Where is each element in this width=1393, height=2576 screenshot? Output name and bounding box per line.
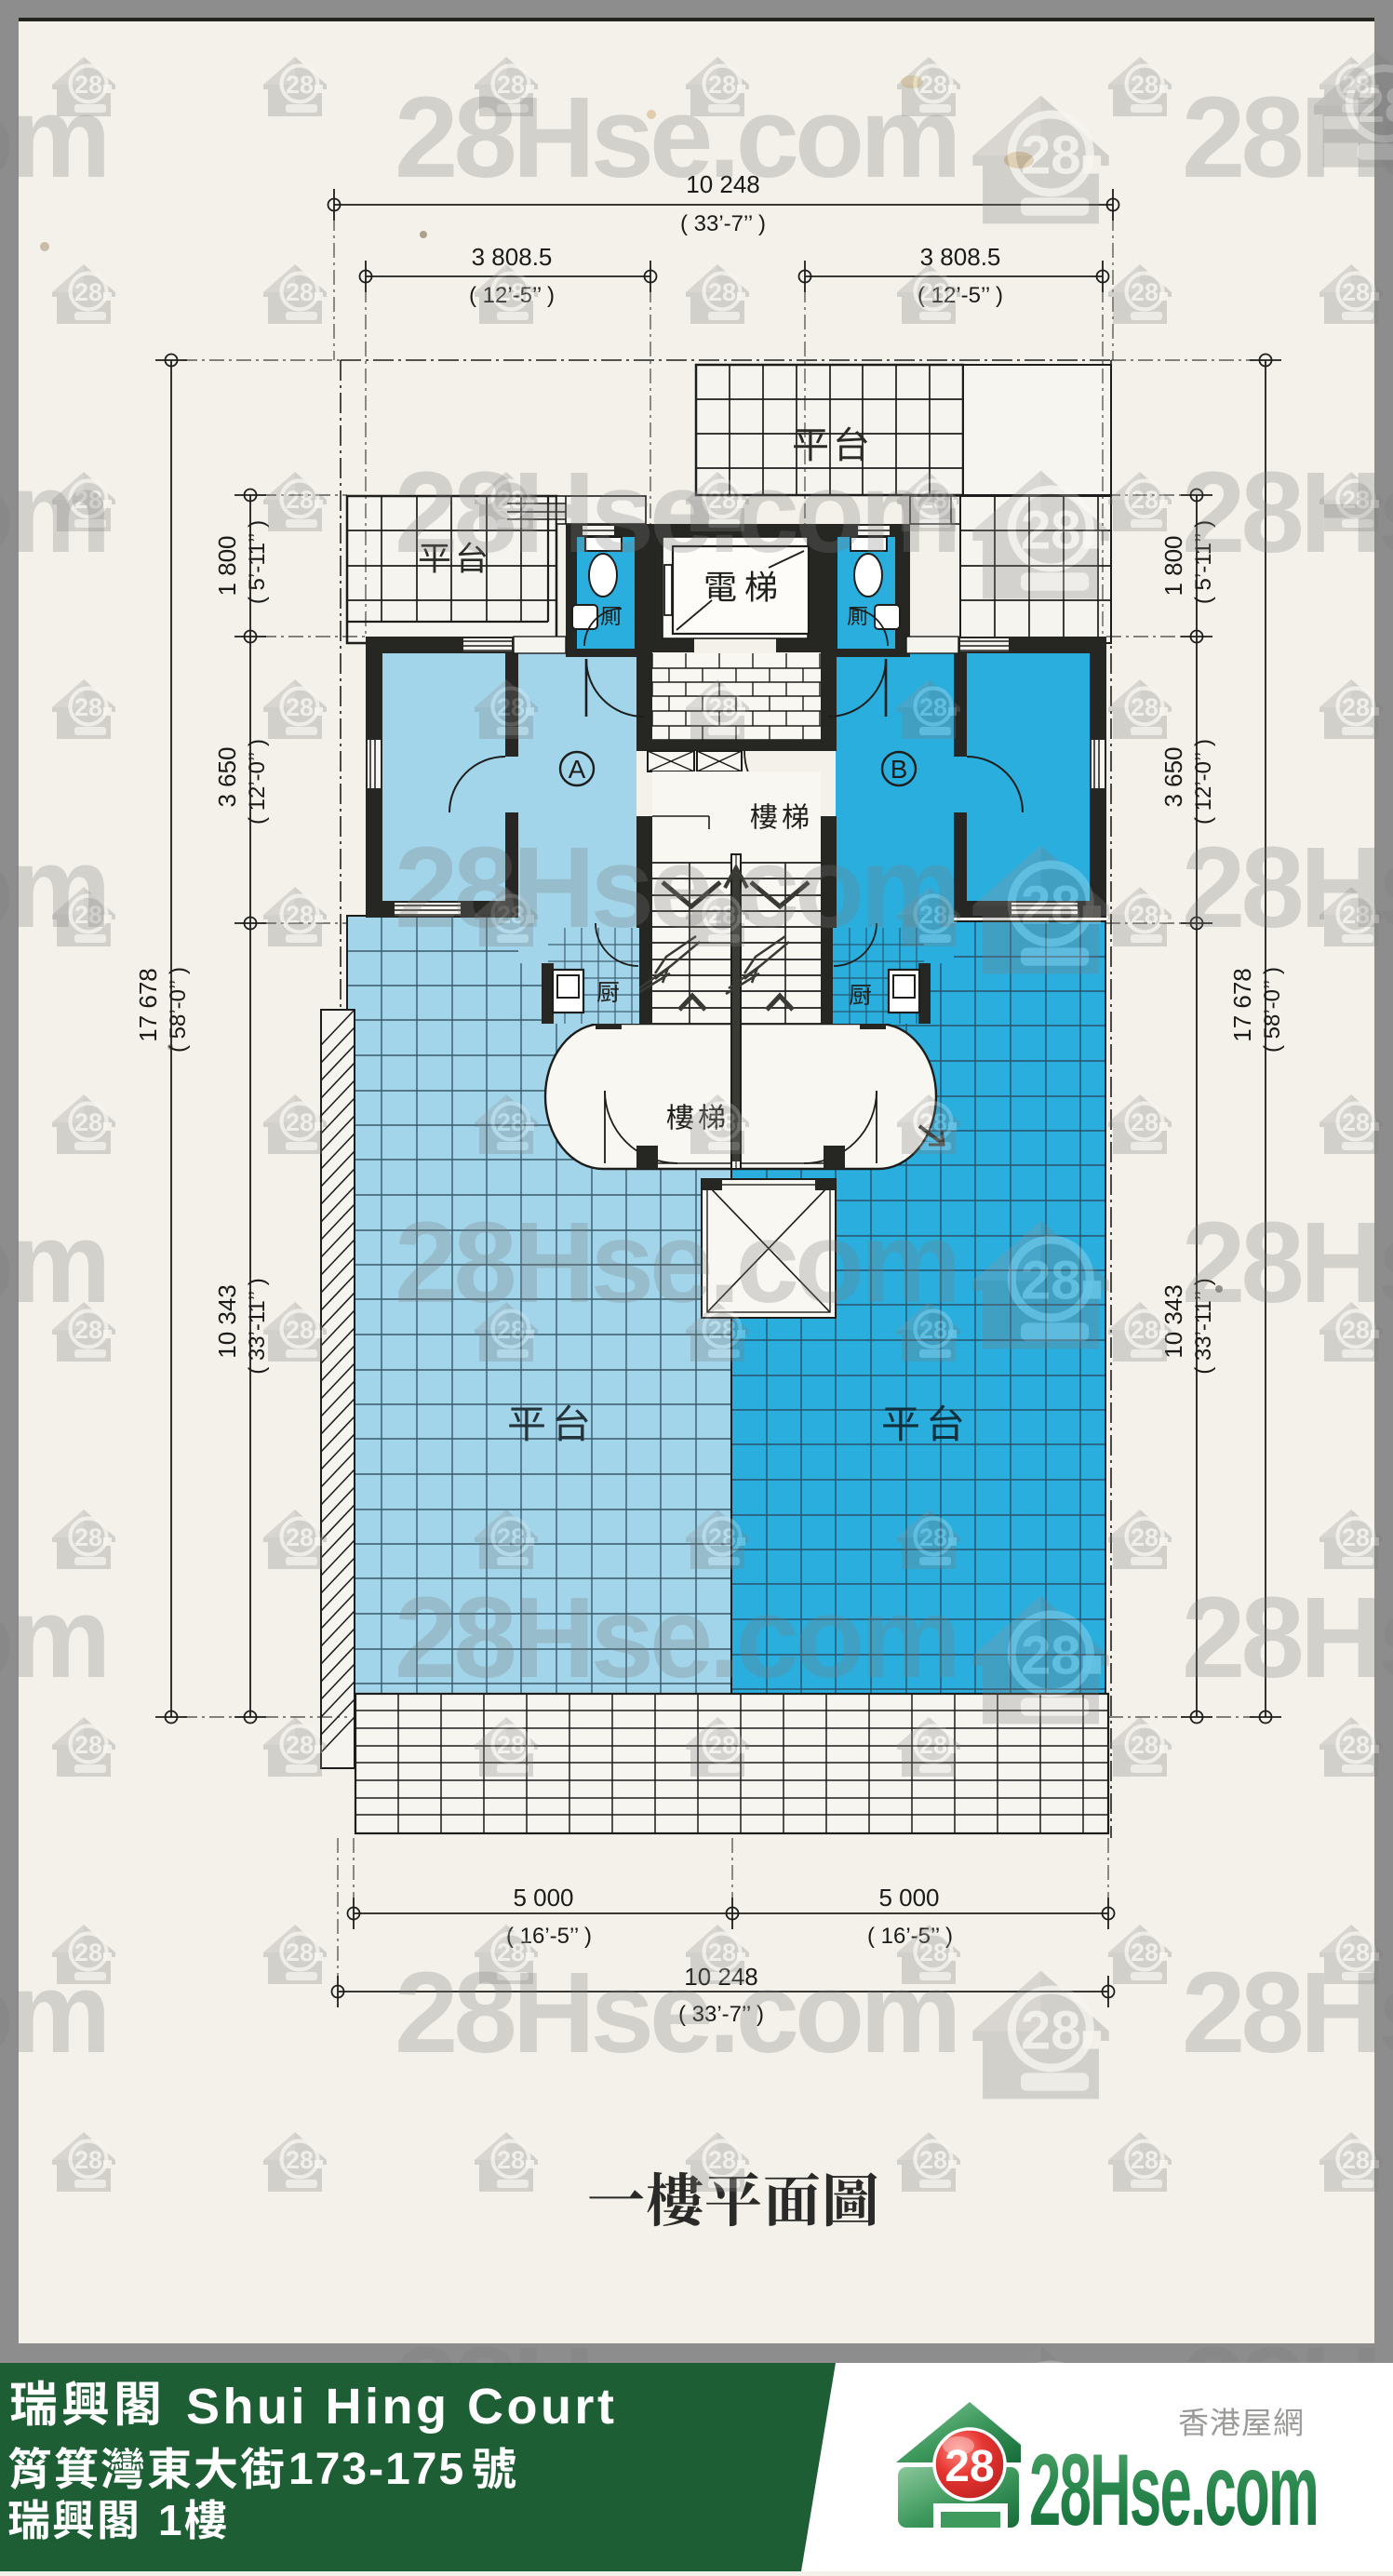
svg-text:( 33’-11’’ ): ( 33’-11’’ ) [245, 1278, 270, 1375]
svg-text:28Hse.com: 28Hse.com [0, 825, 107, 952]
svg-text:173-175: 173-175 [288, 2445, 465, 2494]
svg-text:3 808.5: 3 808.5 [472, 243, 553, 271]
svg-text:3 650: 3 650 [213, 746, 241, 807]
svg-text:28Hse.com: 28Hse.com [0, 449, 107, 577]
svg-text:1: 1 [158, 2496, 182, 2544]
svg-text:10 343: 10 343 [213, 1284, 241, 1359]
svg-text:28Hse.com: 28Hse.com [395, 74, 958, 202]
svg-text:28Hse.com: 28Hse.com [1029, 2432, 1318, 2546]
svg-text:28Hse.com: 28Hse.com [1182, 825, 1393, 952]
svg-text:28Hse.com: 28Hse.com [395, 1200, 958, 1327]
svg-text:B: B [891, 755, 908, 784]
svg-text:( 58’-0’’ ): ( 58’-0’’ ) [166, 967, 191, 1053]
svg-text:( 5’-11’’ ): ( 5’-11’’ ) [245, 520, 270, 604]
svg-text:( 12’-0’’ ): ( 12’-0’’ ) [245, 739, 270, 825]
svg-text:28Hse.com: 28Hse.com [0, 1200, 107, 1327]
svg-text:28Hse.com: 28Hse.com [395, 1950, 958, 2077]
svg-text:17 678: 17 678 [1228, 968, 1256, 1042]
svg-text:28: 28 [944, 2442, 994, 2491]
svg-text:28Hse.com: 28Hse.com [1182, 1200, 1393, 1327]
svg-text:28Hse.com: 28Hse.com [1182, 449, 1393, 577]
svg-text:( 33’-7’’ ): ( 33’-7’’ ) [680, 211, 766, 236]
svg-text:28Hse.com: 28Hse.com [0, 1950, 107, 2077]
svg-text:( 12’-0’’ ): ( 12’-0’’ ) [1191, 739, 1216, 825]
svg-text:28Hse.com: 28Hse.com [1182, 1575, 1393, 1702]
svg-text:17 678: 17 678 [134, 968, 162, 1042]
svg-text:5 000: 5 000 [513, 1884, 573, 1912]
svg-text:28Hse.com: 28Hse.com [0, 74, 107, 202]
svg-text:1 800: 1 800 [213, 535, 241, 596]
svg-text:Shui Hing Court: Shui Hing Court [186, 2379, 617, 2435]
svg-text:28Hse.com: 28Hse.com [395, 825, 958, 952]
svg-text:( 58’-0’’ ): ( 58’-0’’ ) [1260, 967, 1285, 1053]
svg-text:28Hse.com: 28Hse.com [1182, 1950, 1393, 2077]
svg-text:5 000: 5 000 [878, 1884, 939, 1912]
svg-text:28Hse.com: 28Hse.com [0, 1575, 107, 1702]
svg-text:A: A [569, 755, 586, 784]
svg-text:3 808.5: 3 808.5 [920, 243, 1001, 271]
svg-text:28Hse.com: 28Hse.com [395, 449, 958, 577]
svg-text:3 650: 3 650 [1159, 746, 1187, 807]
svg-text:28Hse.com: 28Hse.com [395, 1575, 958, 1702]
